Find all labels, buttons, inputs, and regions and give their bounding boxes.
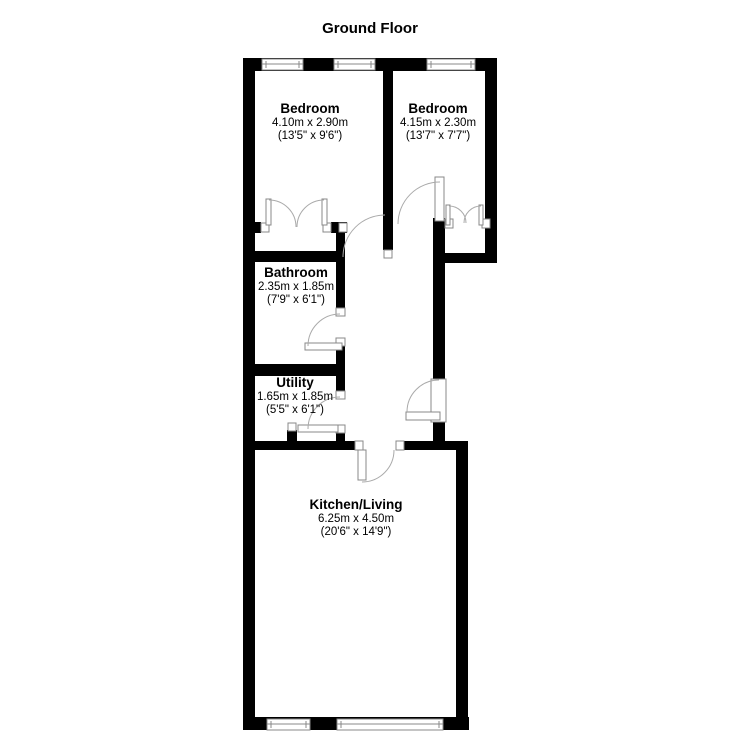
window: [334, 59, 375, 70]
room-label-utility: Utility 1.65m x 1.85m (5'5" x 6'1"): [257, 375, 333, 418]
room-metric: 6.25m x 4.50m: [309, 513, 402, 527]
room-metric: 1.65m x 1.85m: [257, 391, 333, 405]
room-label-kitchen-living: Kitchen/Living 6.25m x 4.50m (20'6" x 14…: [309, 497, 402, 540]
room-name: Utility: [257, 375, 333, 391]
room-label-bathroom: Bathroom 2.35m x 1.85m (7'9" x 6'1"): [258, 265, 334, 308]
room-imperial: (13'7" x 7'7"): [400, 130, 476, 144]
room-label-bedroom-2: Bedroom 4.15m x 2.30m (13'7" x 7'7"): [400, 101, 476, 144]
room-metric: 2.35m x 1.85m: [258, 281, 334, 295]
window: [262, 59, 303, 70]
room-name: Kitchen/Living: [309, 497, 402, 513]
room-name: Bedroom: [272, 101, 348, 117]
room-label-bedroom-1: Bedroom 4.10m x 2.90m (13'5" x 9'6"): [272, 101, 348, 144]
window: [427, 59, 475, 70]
room-imperial: (13'5" x 9'6"): [272, 130, 348, 144]
room-metric: 4.10m x 2.90m: [272, 117, 348, 131]
room-imperial: (20'6" x 14'9"): [309, 526, 402, 540]
room-imperial: (5'5" x 6'1"): [257, 404, 333, 418]
floorplan-page: Ground Floor: [0, 0, 745, 745]
window: [337, 719, 443, 730]
floorplan-drawing: [0, 0, 745, 745]
room-name: Bathroom: [258, 265, 334, 281]
room-imperial: (7'9" x 6'1"): [258, 294, 334, 308]
window: [267, 719, 310, 730]
door-leaves: [266, 177, 483, 480]
room-metric: 4.15m x 2.30m: [400, 117, 476, 131]
room-name: Bedroom: [400, 101, 476, 117]
